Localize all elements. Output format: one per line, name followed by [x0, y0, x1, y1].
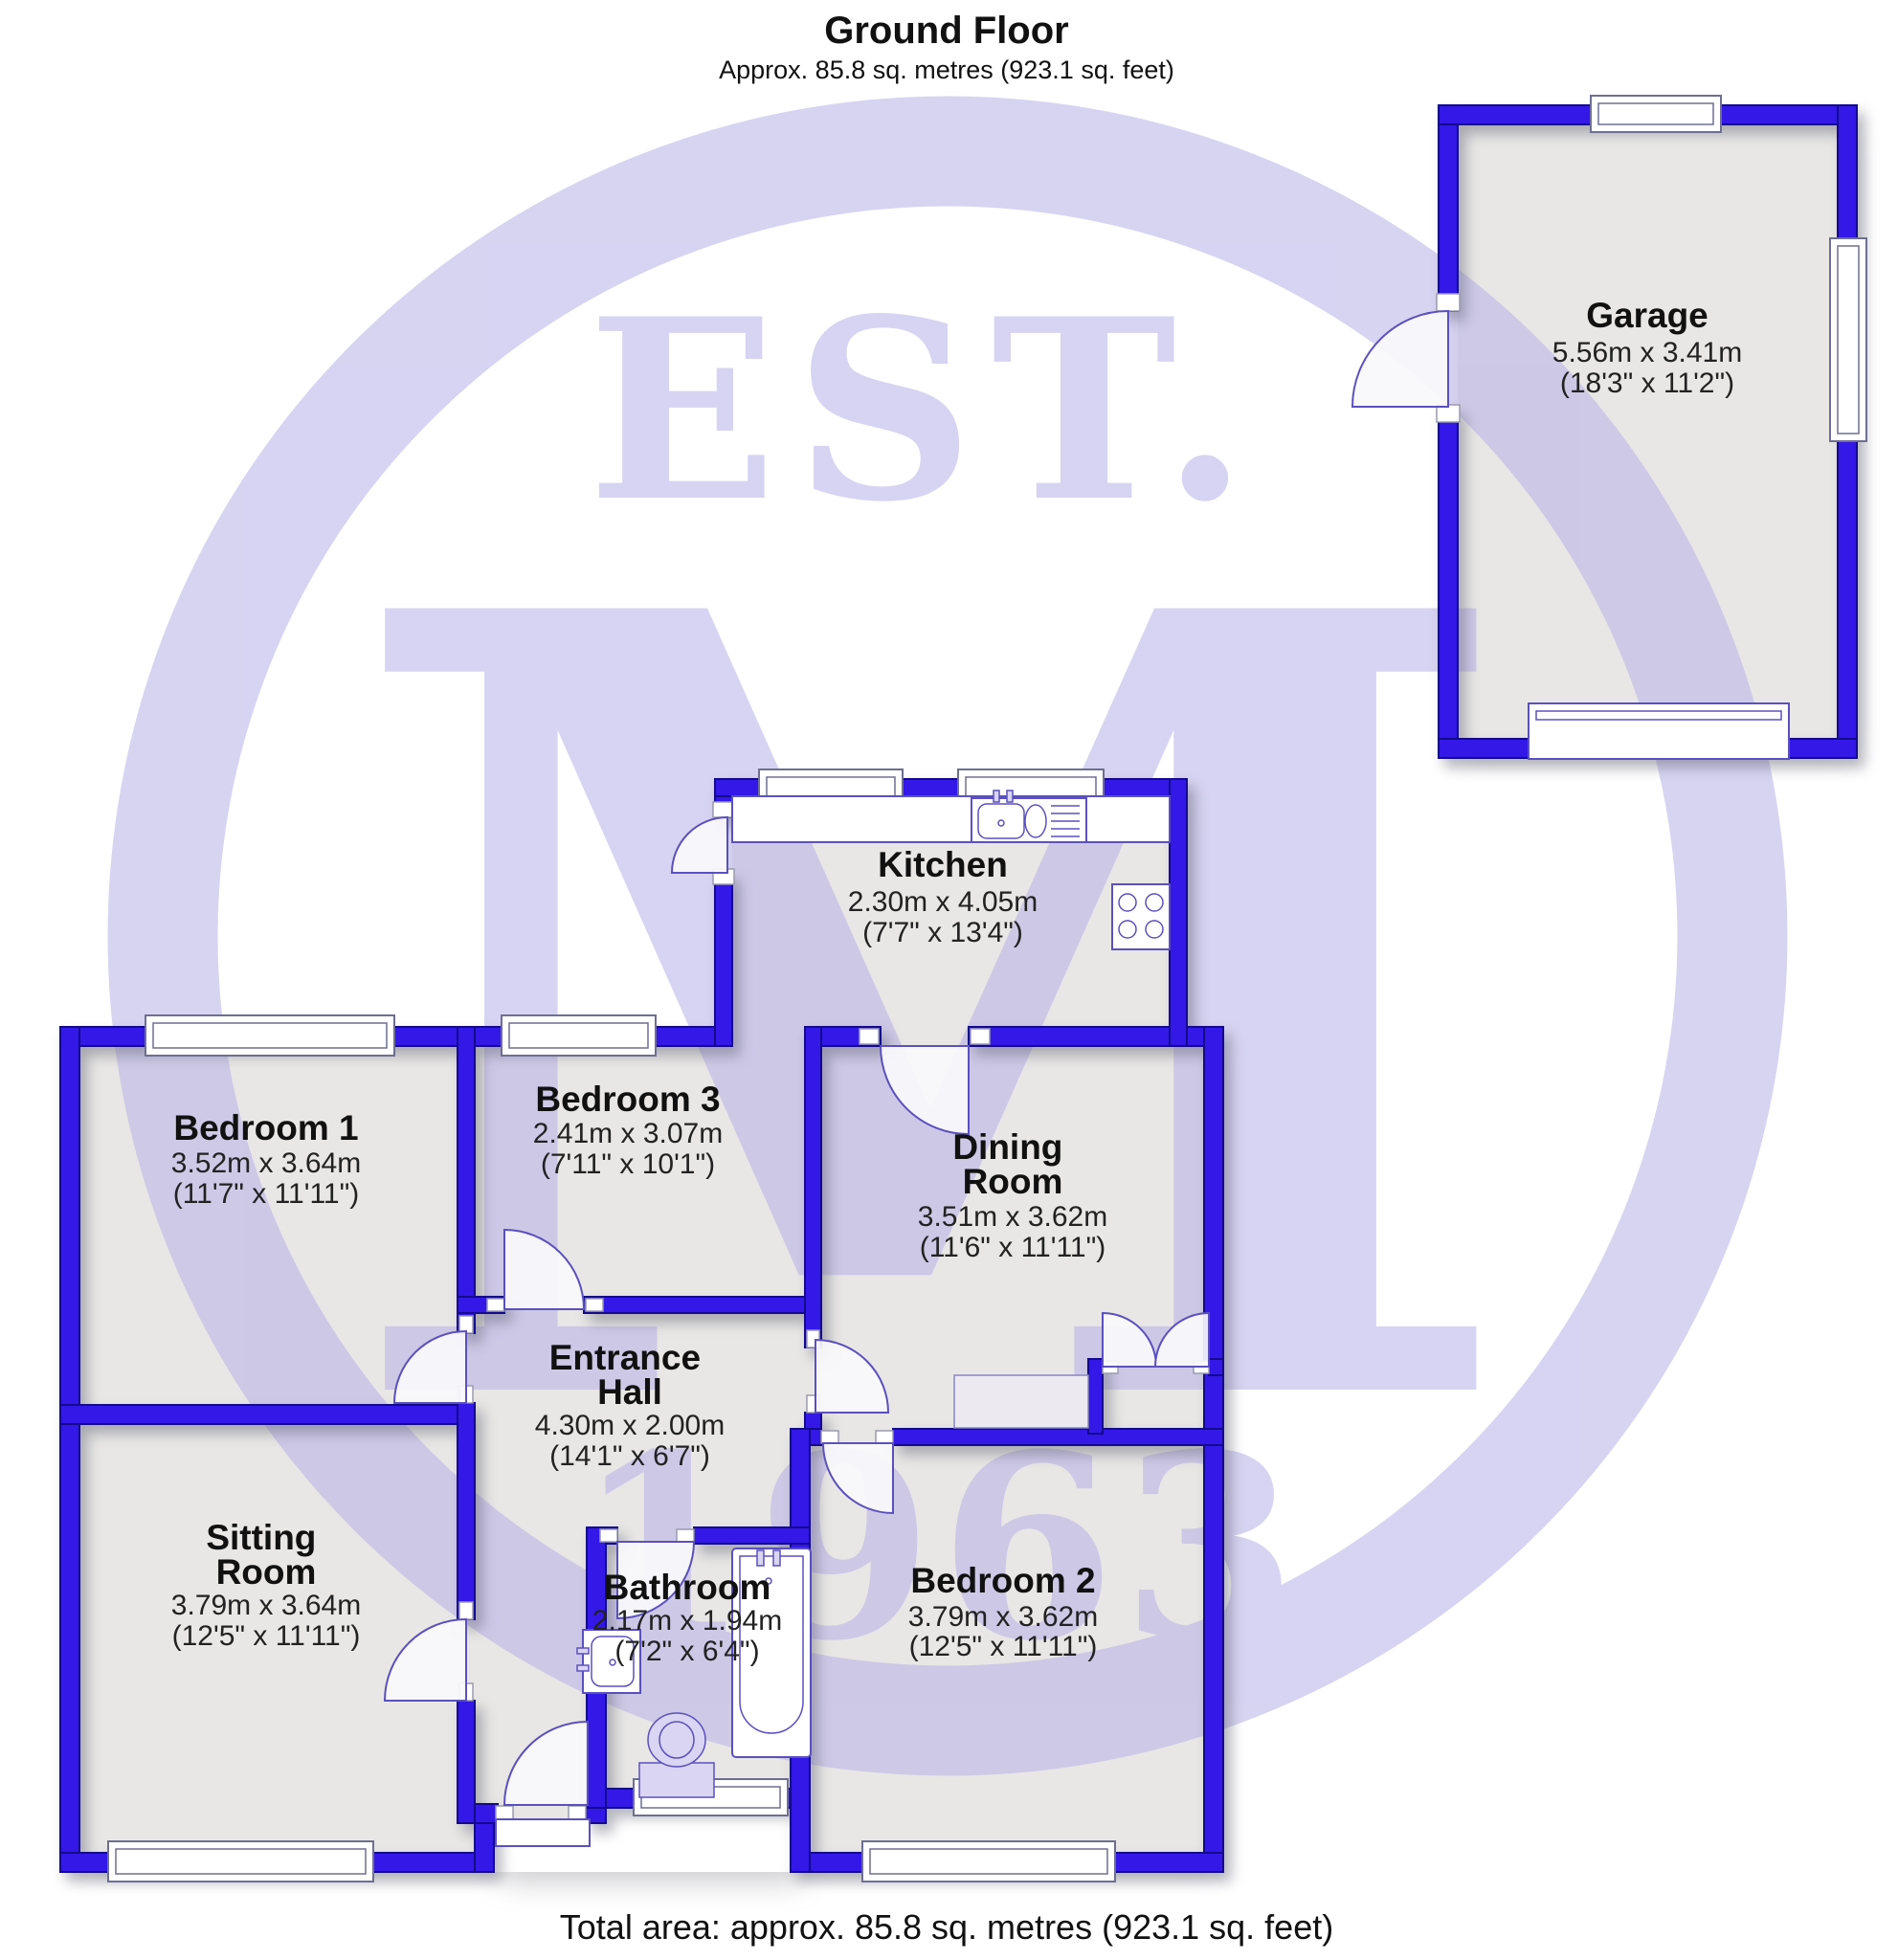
wall-bed3-bottom-b — [584, 1297, 821, 1313]
basin-tap — [577, 1648, 589, 1654]
bedroom3-dims-metric: 2.41m x 3.07m — [533, 1118, 723, 1149]
kitchen-sink-unit — [971, 798, 1086, 842]
bedroom3-label: Bedroom 3 — [535, 1080, 720, 1119]
wall-stub-frontdoor — [475, 1823, 494, 1872]
outside-notch-bathroom — [587, 1808, 791, 1872]
garage-right-window — [1830, 238, 1866, 441]
total-area-text: Total area: approx. 85.8 sq. metres (923… — [560, 1907, 1333, 1947]
page-title: Ground Floor — [824, 10, 1069, 52]
bathroom-dims-metric: 2.17m x 1.94m — [592, 1605, 782, 1637]
bedroom2-window — [862, 1841, 1115, 1882]
bedroom1-window — [145, 1015, 394, 1056]
wall-top-mid-b — [969, 1027, 1187, 1046]
page-subtitle: Approx. 85.8 sq. metres (923.1 sq. feet) — [719, 56, 1174, 84]
jamb — [1437, 294, 1460, 311]
bedroom3-window — [502, 1015, 656, 1056]
kitchen-dims-imperial: (7'7" x 13'4") — [862, 917, 1023, 948]
jamb — [677, 1529, 694, 1542]
sink-tap — [1007, 791, 1013, 802]
garage-label: Garage — [1586, 296, 1708, 335]
bathroom-label: Bathroom — [604, 1568, 771, 1607]
bath-tap — [773, 1550, 780, 1566]
wall-garage-left-a — [1439, 105, 1458, 311]
wall-kitchen-right — [1170, 779, 1187, 1046]
sitting-room-label: Sitting Room — [206, 1518, 325, 1592]
jamb — [821, 1431, 838, 1443]
wall-bed1-right-b — [458, 1403, 475, 1619]
bedroom3-dims-imperial: (7'11" x 10'1") — [541, 1148, 715, 1180]
dining-dims-metric: 3.51m x 3.62m — [918, 1201, 1107, 1233]
garage-dims-imperial: (18'3" x 11'2") — [1560, 367, 1734, 399]
hall-dims-metric: 4.30m x 2.00m — [535, 1410, 725, 1441]
sitting-label-line1: Sitting — [206, 1518, 316, 1557]
sitting-label-line2: Room — [216, 1552, 317, 1592]
floorplan-page: EST. M 1963 — [0, 0, 1898, 1960]
wall-french-b — [1209, 1359, 1223, 1375]
wall-dining-left-a — [805, 1027, 821, 1347]
wall-garage-left-b — [1439, 407, 1458, 758]
wall-bath-top-b — [694, 1527, 810, 1544]
kitchen-dims-metric: 2.30m x 4.05m — [848, 886, 1038, 918]
garage-dims-metric: 5.56m x 3.41m — [1552, 337, 1742, 368]
bathroom-dims-imperial: (7'2" x 6'4") — [614, 1636, 759, 1667]
sitting-room-window — [108, 1841, 373, 1882]
sitting-dims-imperial: (12'5" x 11'11") — [172, 1620, 361, 1652]
jamb — [459, 1602, 473, 1619]
kitchen-hob — [1112, 884, 1170, 949]
hall-label-line1: Entrance — [549, 1338, 701, 1377]
jamb — [713, 802, 734, 817]
bedroom2-label: Bedroom 2 — [910, 1561, 1095, 1600]
hall-dims-imperial: (14'1" x 6'7") — [549, 1440, 710, 1472]
wall-frontdoor-a — [475, 1804, 498, 1823]
jamb — [487, 1299, 504, 1311]
dining-hearth-recess — [954, 1375, 1088, 1428]
jamb — [600, 1529, 617, 1542]
sitting-dims-metric: 3.79m x 3.64m — [171, 1590, 361, 1621]
kitchen-counter — [732, 796, 1170, 842]
wall-bed1-right-a — [458, 1027, 475, 1333]
wall-french-stub — [1088, 1359, 1103, 1434]
sink-tap — [994, 791, 999, 802]
bedroom1-dims-imperial: (11'7" x 11'11") — [173, 1178, 360, 1210]
dining-label-line2: Room — [963, 1162, 1063, 1201]
jamb — [860, 1029, 879, 1044]
dining-label-line1: Dining — [952, 1127, 1062, 1167]
wall-kitchen-left-b — [715, 873, 732, 1046]
wall-hall-bed2-b — [893, 1429, 1223, 1445]
bedroom2-dims-imperial: (12'5" x 11'11") — [909, 1631, 1098, 1662]
bedroom2-dims-metric: 3.79m x 3.62m — [908, 1601, 1098, 1633]
wall-sitting-top — [60, 1405, 458, 1424]
hall-label-line2: Hall — [597, 1372, 662, 1412]
bedroom1-label: Bedroom 1 — [173, 1108, 358, 1147]
wall-bed1-right-c — [458, 1701, 475, 1823]
kitchen-label: Kitchen — [878, 845, 1008, 884]
jamb — [586, 1299, 603, 1311]
jamb — [876, 1431, 893, 1443]
bedroom1-dims-metric: 3.52m x 3.64m — [171, 1147, 361, 1179]
wall-left — [60, 1027, 79, 1872]
bath-tap — [757, 1550, 764, 1566]
jamb — [971, 1029, 990, 1044]
floor-plan-svg: EST. M 1963 — [0, 0, 1898, 1960]
toilet-cistern — [639, 1763, 714, 1797]
basin-tap — [577, 1665, 589, 1671]
garage-top-window — [1591, 96, 1721, 132]
front-door-threshold — [496, 1819, 590, 1846]
wall-right — [1204, 1027, 1223, 1872]
dining-dims-imperial: (11'6" x 11'11") — [920, 1232, 1106, 1263]
dining-room-label: Dining Room — [952, 1127, 1072, 1201]
